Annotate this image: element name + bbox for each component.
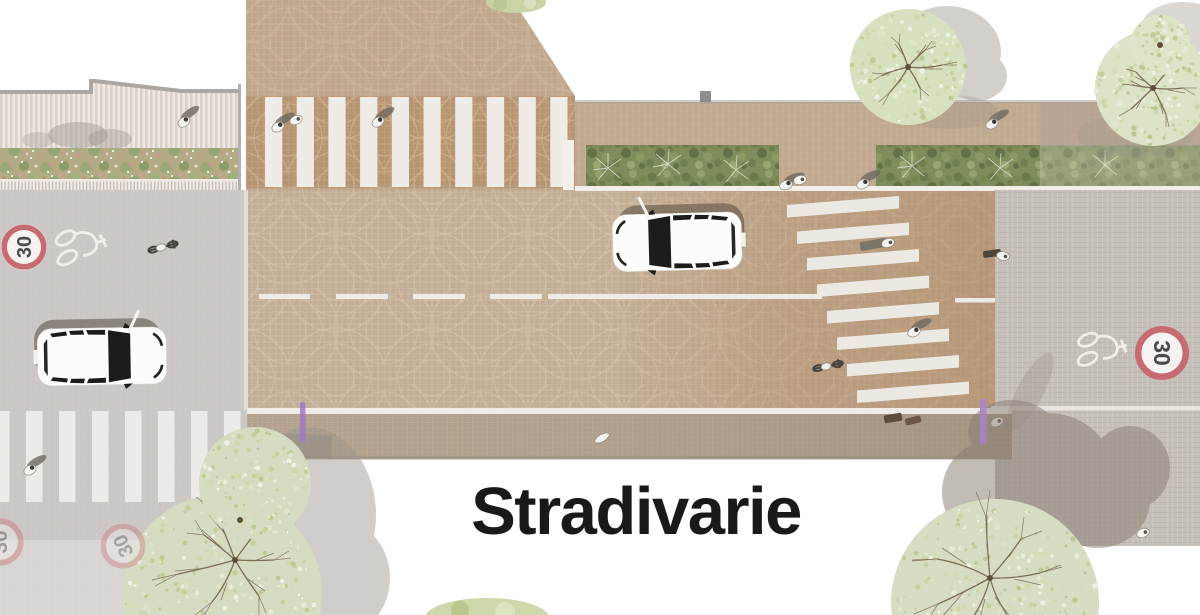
svg-text:30: 30 (1149, 340, 1175, 366)
svg-text:Stradivarie: Stradivarie (471, 474, 801, 549)
svg-text:30: 30 (14, 236, 36, 258)
svg-text:30: 30 (0, 530, 12, 553)
